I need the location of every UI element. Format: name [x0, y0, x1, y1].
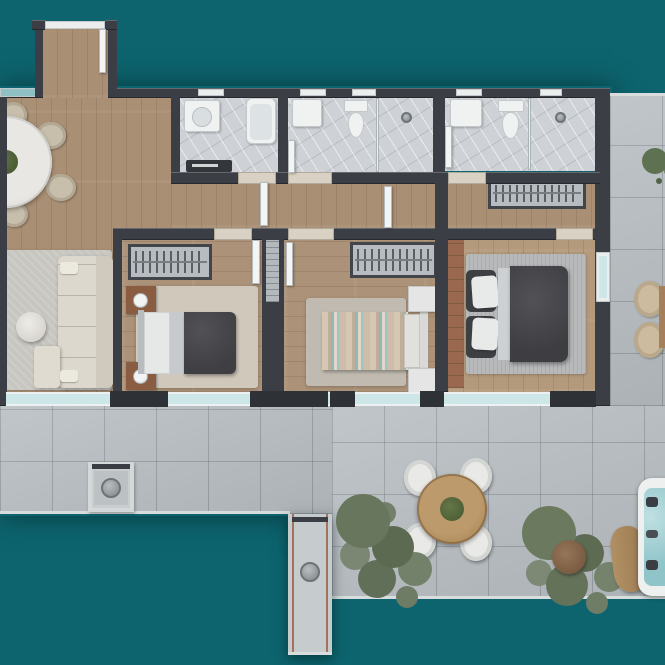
planter-walkway-drain — [300, 562, 320, 582]
bathroom-2-glass-partition — [376, 98, 379, 172]
wall-bath1-bath2 — [278, 88, 288, 184]
shower-tray-faucet — [192, 164, 218, 167]
entry-west-wall — [35, 20, 43, 98]
bedroom-1-bed-fold — [170, 312, 184, 374]
bathroom-2-door-threshold — [288, 172, 332, 184]
sofa-pillow-top — [60, 262, 78, 274]
bathroom-2-toilet-tank — [344, 100, 368, 112]
bathroom-2-shower-drain — [401, 112, 412, 123]
bedroom-2-wardrobe-rod — [355, 259, 432, 261]
master-terrace-door-glass — [599, 256, 607, 298]
wall-dining-bath1 — [171, 88, 180, 184]
master-bed-duvet — [510, 266, 568, 362]
hallway-wardrobe-rod — [493, 192, 581, 194]
master-headboard-panel — [448, 240, 464, 388]
bedroom-2-door-leaf — [286, 242, 293, 286]
round-brown-planter — [552, 540, 586, 574]
bathroom-3-window-b — [540, 89, 562, 96]
glazing-mullion-1 — [110, 391, 168, 407]
bedroom-2-nightstand-top — [408, 286, 436, 312]
bedroom-1-bed-linen — [144, 312, 170, 374]
wall-bedroom2-master — [435, 172, 448, 392]
hallway-door-leaf — [384, 186, 392, 228]
square-planter-cap — [92, 464, 130, 469]
bedroom-1-door-threshold — [214, 228, 252, 240]
master-door-threshold — [556, 228, 593, 240]
bedroom-2-bed-mattress — [322, 312, 408, 370]
floor-plan-render: { "scene": { "type": "apartment-floor-pl… — [0, 0, 665, 665]
bedroom-2-bed-headboard — [420, 310, 428, 372]
bathroom-3-glass-partition — [528, 98, 531, 170]
terrace-bottom-left-edge — [0, 511, 290, 514]
bedroom-2-door-threshold — [288, 228, 334, 240]
service-shaft — [266, 240, 279, 302]
master-bed-pillow-white-top — [471, 275, 499, 309]
bathroom-3-door-leaf — [445, 126, 452, 168]
east-wall — [595, 88, 610, 406]
planter-walkway-right-trim — [326, 514, 328, 655]
planter-walkway-left-trim — [292, 514, 294, 655]
bathtub-inner — [250, 104, 272, 140]
corner-plant — [642, 148, 665, 174]
glazing-mullion-3 — [330, 391, 355, 407]
wall-bath2-bath3 — [433, 88, 445, 184]
terrace-right-top-edge — [610, 93, 665, 96]
entry-west-cap — [32, 20, 45, 30]
potted-tree-left — [336, 494, 390, 548]
bathroom-1-window — [198, 89, 224, 96]
master-bed-pillow-white-bottom — [471, 317, 499, 350]
entry-east-cap — [105, 20, 117, 30]
bathroom-3-door-threshold — [448, 172, 486, 184]
square-planter-drain — [101, 478, 121, 498]
sofa-chaise — [34, 346, 60, 388]
hot-tub-seat-top — [646, 497, 658, 507]
bathroom-3-window-a — [456, 89, 482, 96]
bedroom-1-door-leaf — [252, 240, 260, 284]
terrace-bottom-left — [0, 406, 332, 514]
dining-chair-east — [46, 174, 76, 201]
bathroom-2-door-leaf — [288, 140, 295, 173]
planter-walkway-cap — [292, 517, 328, 522]
bathroom-3-toilet-tank — [498, 100, 524, 112]
bedroom-2-wardrobe — [350, 242, 437, 278]
bathroom-1-door-threshold — [238, 172, 276, 184]
living-side-table — [16, 312, 46, 342]
wall-living-bedroom1 — [113, 228, 122, 392]
planter-walkway-bottom-edge — [288, 652, 332, 655]
entry-east-wall — [108, 20, 117, 98]
bath-strip-south-wall — [171, 172, 600, 184]
bathroom-1-door-leaf — [260, 182, 268, 226]
glazing-mullion-2 — [250, 391, 328, 407]
bedroom-1-lamp-top — [133, 293, 148, 308]
glazing-mullion-4 — [420, 391, 444, 407]
bedroom-1-wardrobe-rod — [133, 261, 207, 263]
west-wall — [0, 88, 7, 406]
entry-door-leaf — [99, 29, 106, 73]
bathroom-2-window-b — [352, 89, 376, 96]
entry-door-threshold — [45, 21, 105, 29]
bedroom-1-wardrobe — [128, 244, 212, 280]
hot-tub-seat-bottom — [646, 560, 658, 570]
dining-north-window — [0, 88, 40, 97]
glazing-mullion-5 — [550, 391, 596, 407]
bathroom-1-basin — [192, 107, 212, 127]
bathroom-2-vanity-sink — [292, 99, 322, 127]
sofa-backrest — [96, 256, 113, 388]
bathroom-3-shower-drain — [555, 112, 566, 123]
sofa-pillow-bottom — [60, 370, 78, 382]
bedroom-2-bed-pillows — [404, 314, 420, 368]
bathroom-3-vanity-sink — [450, 99, 482, 127]
hot-tub-seat-mid — [646, 530, 658, 538]
table-centerpiece-plant — [440, 497, 464, 521]
bedroom-1-bed-duvet — [184, 312, 236, 374]
bathroom-2-window-a — [300, 89, 326, 96]
terrace-right-strip — [610, 95, 665, 406]
edge-table-sliver — [659, 286, 665, 348]
terrace-bottom-right-edge — [332, 596, 665, 599]
